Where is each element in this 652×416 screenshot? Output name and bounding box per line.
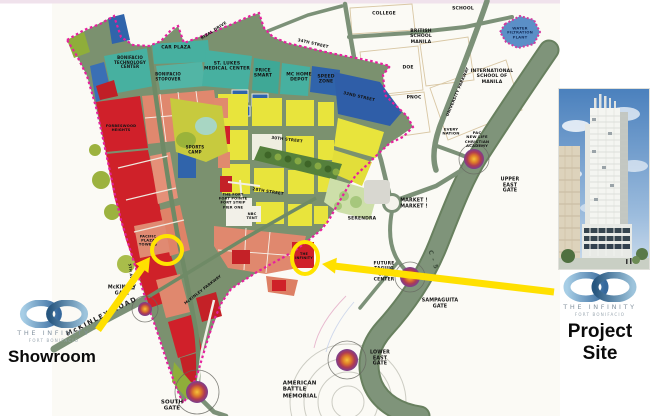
mckinley-gate-node: [138, 302, 152, 316]
showroom-caption: Showroom: [8, 347, 104, 367]
brand-subtitle: FORT BONIFACIO: [550, 312, 650, 317]
lower-east-gate-node: [336, 349, 358, 371]
infinity-logo: [10, 300, 98, 328]
infinity-site-block: [292, 242, 314, 268]
podium: [582, 224, 632, 258]
slide: CAR PLAZA ST. LUKES MEDICAL CENTER PRICE…: [0, 0, 652, 416]
brand-name: THE INFINITY: [550, 303, 650, 311]
upper-east-gate-node: [464, 149, 484, 169]
sampaguita-gate-node: [400, 267, 420, 287]
showroom-panel: THE INFINITY FORT BONIFACIO Showroom: [4, 300, 104, 367]
project-site-panel: THE INFINITY FORT BONIFACIO Project Site: [550, 272, 650, 365]
project-site-caption: Project Site: [550, 321, 650, 365]
infinity-logo: [550, 272, 650, 302]
brand-subtitle: FORT BONIFACIO: [4, 338, 104, 343]
south-gate-node: [186, 381, 208, 403]
brand-name: THE INFINITY: [4, 329, 104, 337]
building-render: [558, 88, 650, 270]
main-tower: [585, 94, 628, 226]
